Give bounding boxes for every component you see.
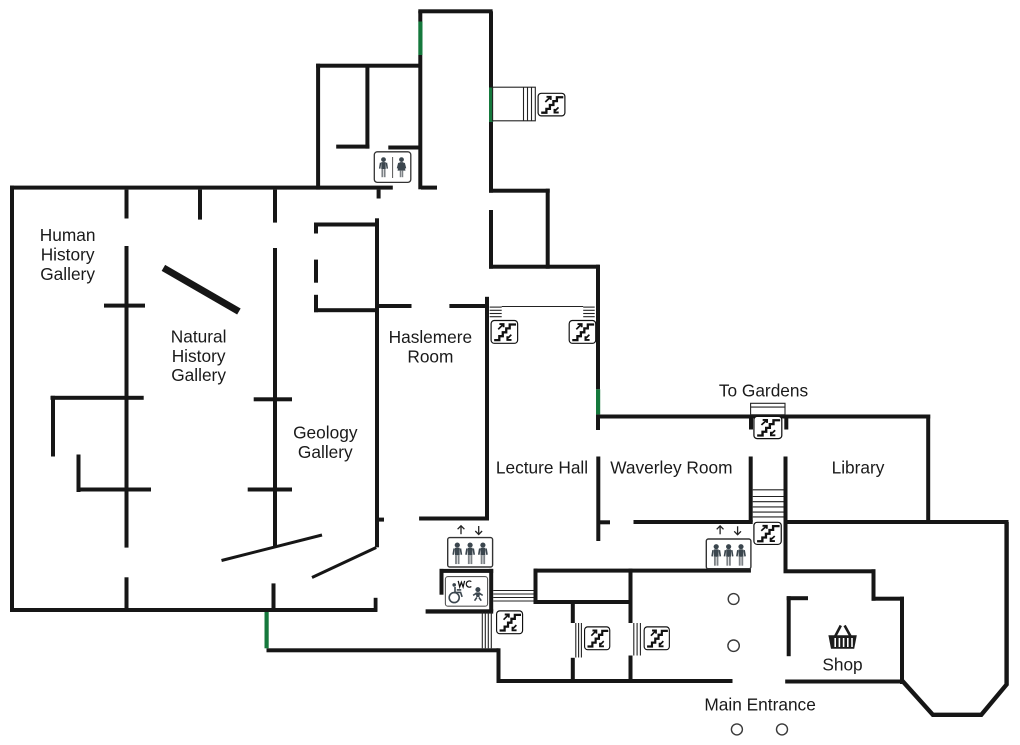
svg-text:History: History xyxy=(172,346,226,366)
svg-text:Natural: Natural xyxy=(171,326,227,346)
svg-text:Gallery: Gallery xyxy=(171,365,226,385)
svg-text:Lecture Hall: Lecture Hall xyxy=(496,458,588,478)
svg-text:Shop: Shop xyxy=(822,655,862,675)
svg-text:To Gardens: To Gardens xyxy=(719,380,809,400)
svg-text:Geology: Geology xyxy=(293,423,358,443)
svg-text:Waverley Room: Waverley Room xyxy=(610,457,732,477)
svg-text:Gallery: Gallery xyxy=(298,442,353,462)
svg-text:Human: Human xyxy=(40,225,96,245)
svg-text:Room: Room xyxy=(407,346,453,366)
svg-text:Main Entrance: Main Entrance xyxy=(704,695,815,715)
svg-text:Haslemere: Haslemere xyxy=(389,327,473,347)
svg-text:Library: Library xyxy=(832,458,885,478)
svg-text:Gallery: Gallery xyxy=(40,264,95,284)
svg-text:History: History xyxy=(41,244,95,264)
